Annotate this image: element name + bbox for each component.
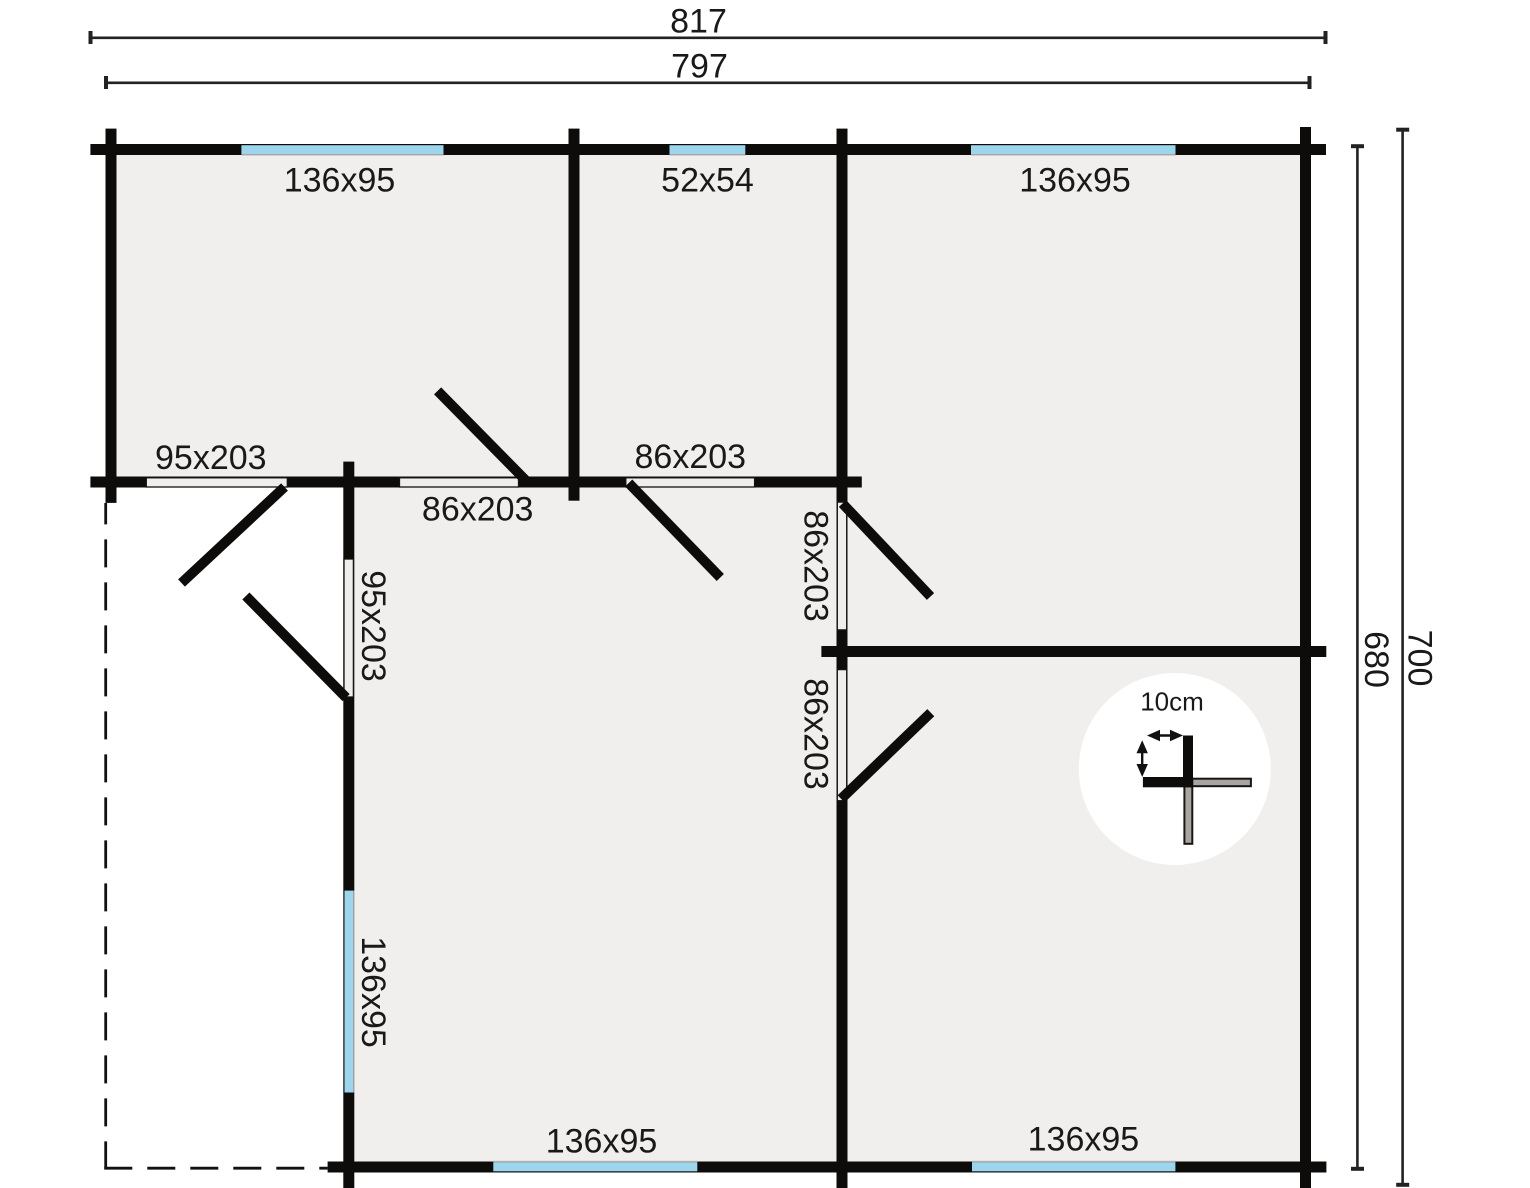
svg-text:700: 700 — [1401, 630, 1439, 687]
svg-text:52x54: 52x54 — [661, 162, 754, 200]
svg-text:95x203: 95x203 — [155, 439, 267, 477]
svg-text:86x203: 86x203 — [422, 490, 534, 528]
svg-text:136x95: 136x95 — [284, 162, 396, 200]
svg-text:817: 817 — [670, 2, 727, 40]
svg-text:86x203: 86x203 — [797, 510, 835, 622]
svg-text:86x203: 86x203 — [797, 678, 835, 790]
svg-text:86x203: 86x203 — [635, 438, 747, 476]
svg-text:10cm: 10cm — [1140, 687, 1204, 717]
svg-text:136x95: 136x95 — [1028, 1120, 1140, 1158]
svg-text:95x203: 95x203 — [354, 570, 392, 682]
svg-text:136x95: 136x95 — [354, 936, 392, 1048]
svg-text:136x95: 136x95 — [1019, 162, 1131, 200]
svg-text:797: 797 — [671, 47, 728, 85]
svg-text:136x95: 136x95 — [546, 1123, 658, 1161]
svg-text:680: 680 — [1357, 631, 1395, 688]
